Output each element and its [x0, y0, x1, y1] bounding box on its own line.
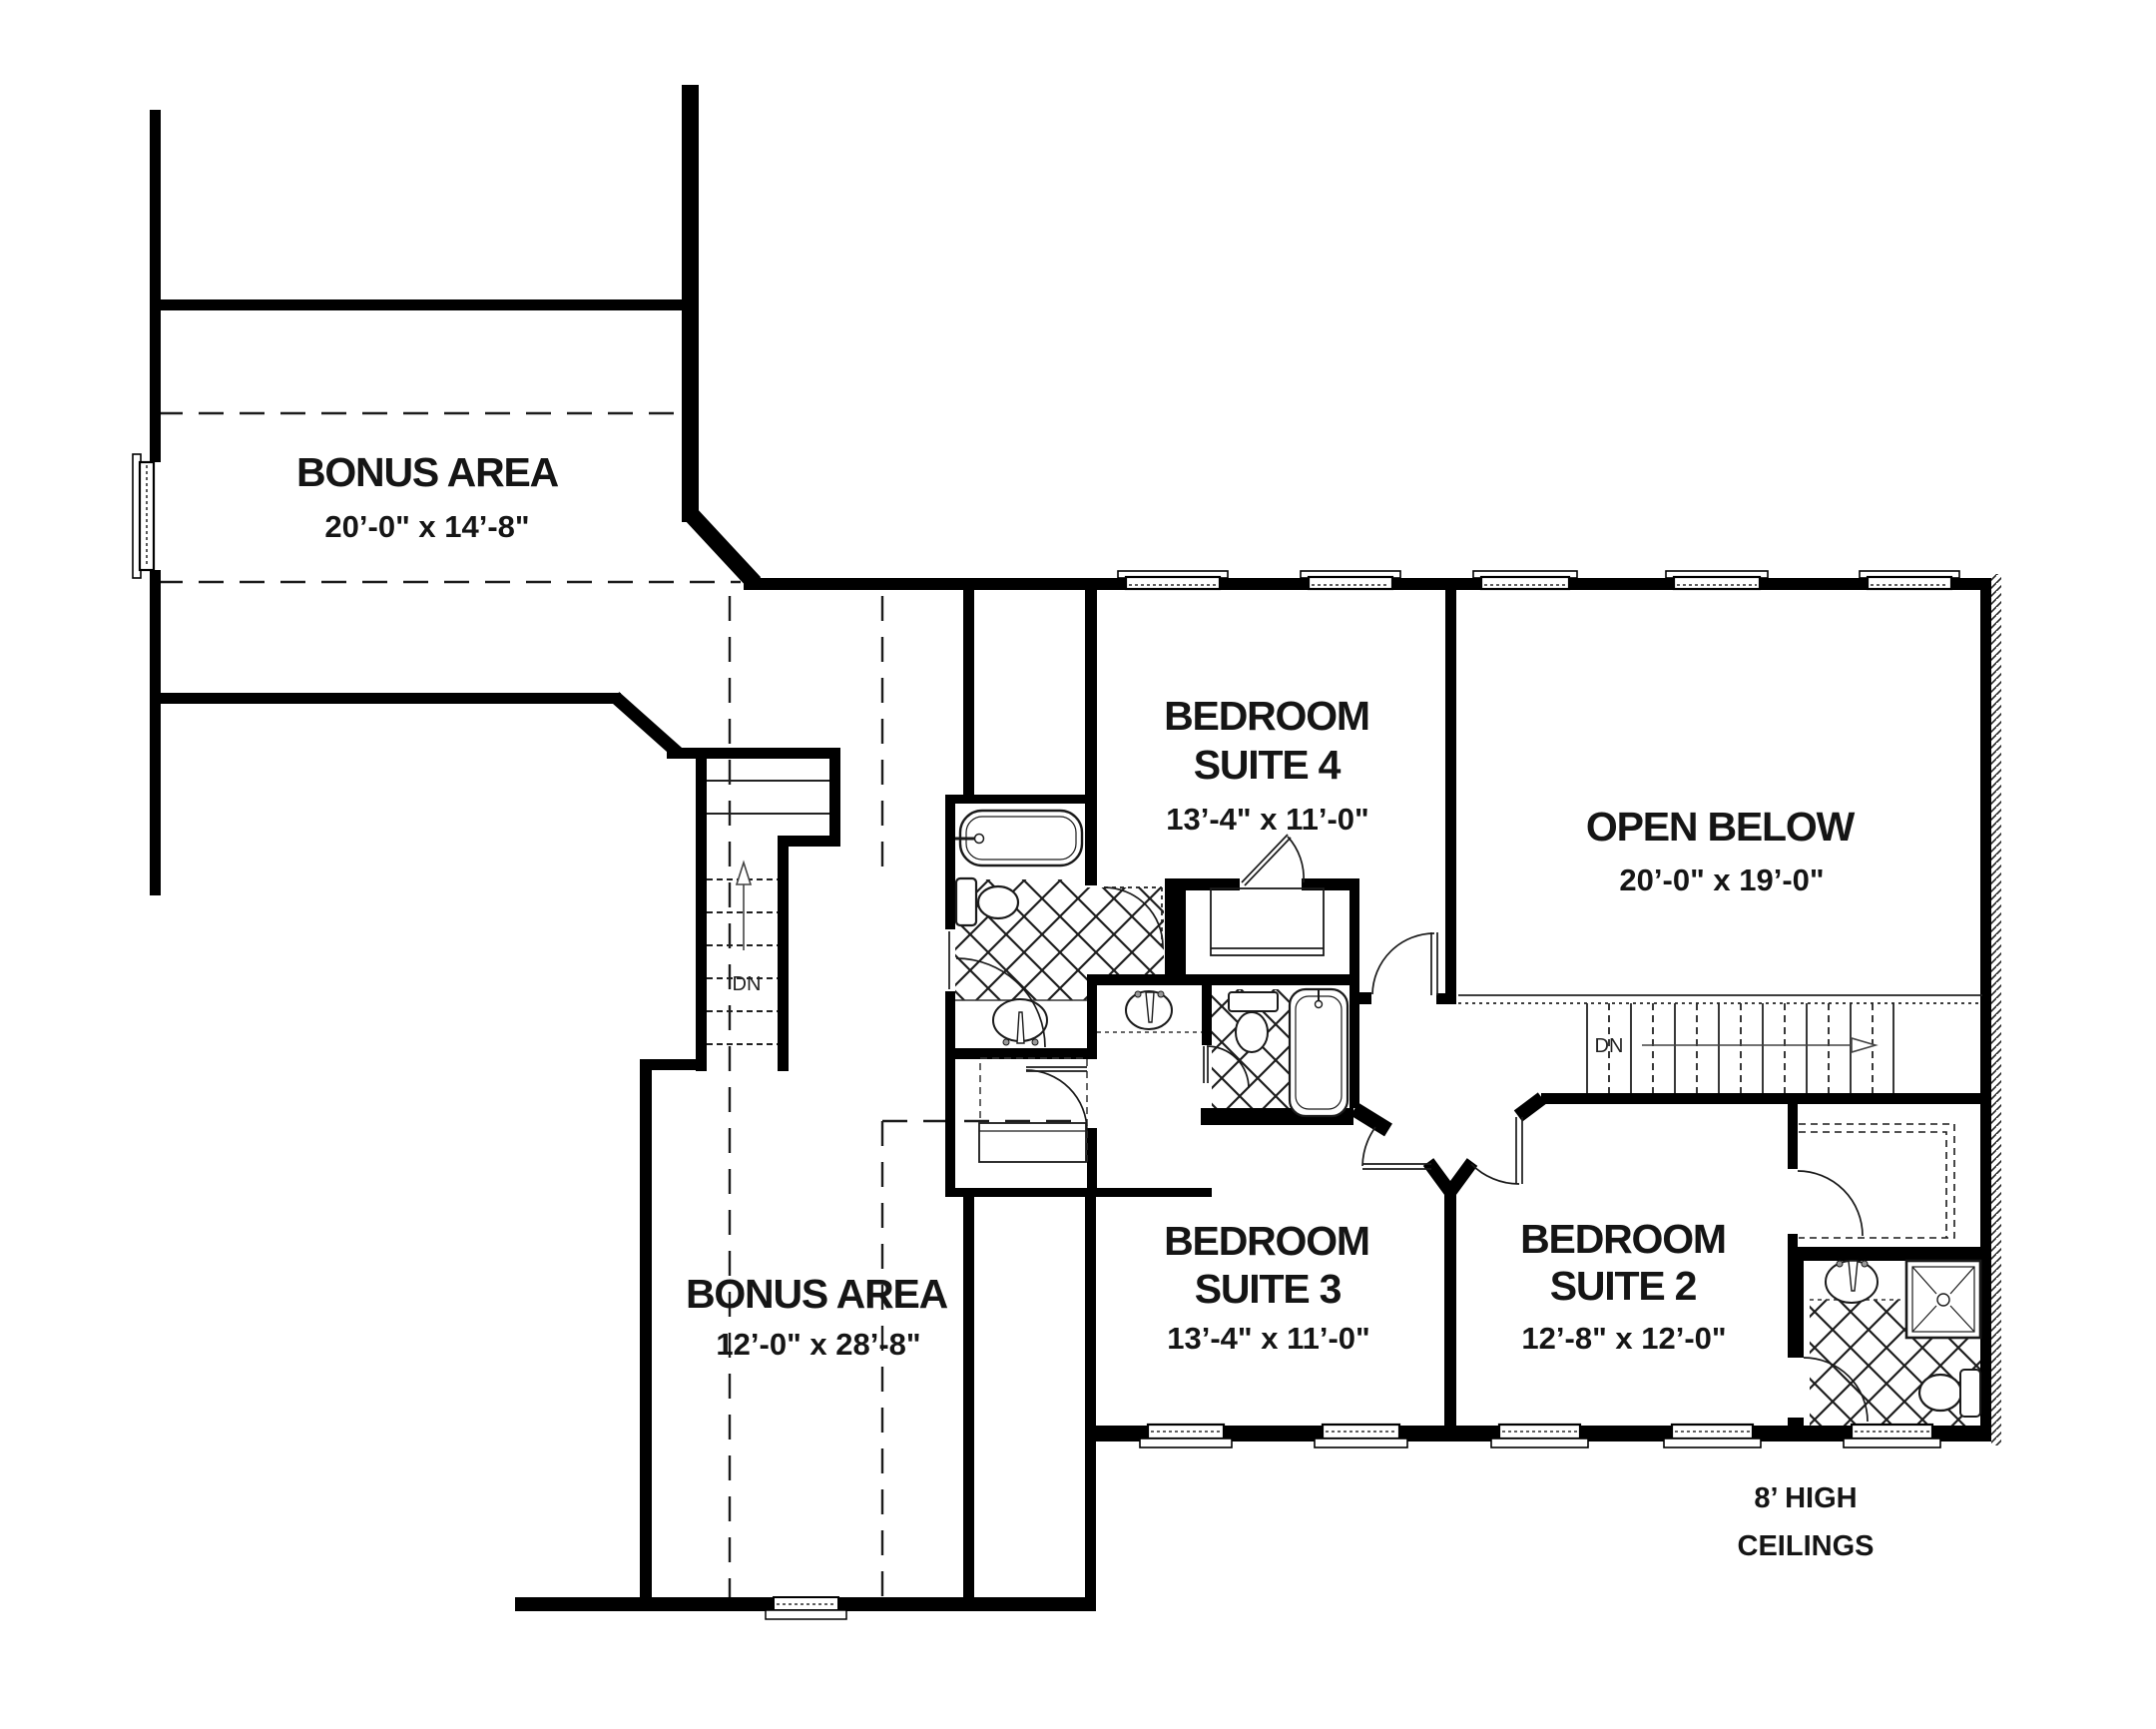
svg-text:CEILINGS: CEILINGS — [1738, 1530, 1875, 1562]
svg-text:20’-0" x 19’-0": 20’-0" x 19’-0" — [1619, 863, 1824, 897]
svg-text:BEDROOM: BEDROOM — [1164, 1218, 1369, 1264]
svg-text:SUITE 4: SUITE 4 — [1194, 742, 1342, 788]
svg-text:DN: DN — [1595, 1035, 1624, 1057]
svg-text:DN: DN — [733, 973, 762, 995]
svg-text:20’-0" x 14’-8": 20’-0" x 14’-8" — [324, 509, 529, 544]
svg-text:BONUS AREA: BONUS AREA — [296, 449, 559, 495]
svg-text:OPEN BELOW: OPEN BELOW — [1586, 804, 1856, 850]
svg-text:SUITE 2: SUITE 2 — [1550, 1263, 1697, 1309]
svg-text:13’-4" x 11’-0": 13’-4" x 11’-0" — [1167, 1321, 1369, 1356]
svg-text:12’-0" x 28’-8": 12’-0" x 28’-8" — [716, 1327, 920, 1362]
svg-text:BEDROOM: BEDROOM — [1520, 1216, 1726, 1262]
svg-text:BEDROOM: BEDROOM — [1164, 693, 1369, 739]
svg-text:BONUS AREA: BONUS AREA — [686, 1271, 948, 1317]
svg-text:13’-4" x 11’-0": 13’-4" x 11’-0" — [1166, 802, 1368, 837]
svg-text:12’-8" x 12’-0": 12’-8" x 12’-0" — [1521, 1321, 1726, 1356]
svg-text:SUITE 3: SUITE 3 — [1195, 1266, 1342, 1312]
svg-text:8’ HIGH: 8’ HIGH — [1754, 1482, 1857, 1514]
